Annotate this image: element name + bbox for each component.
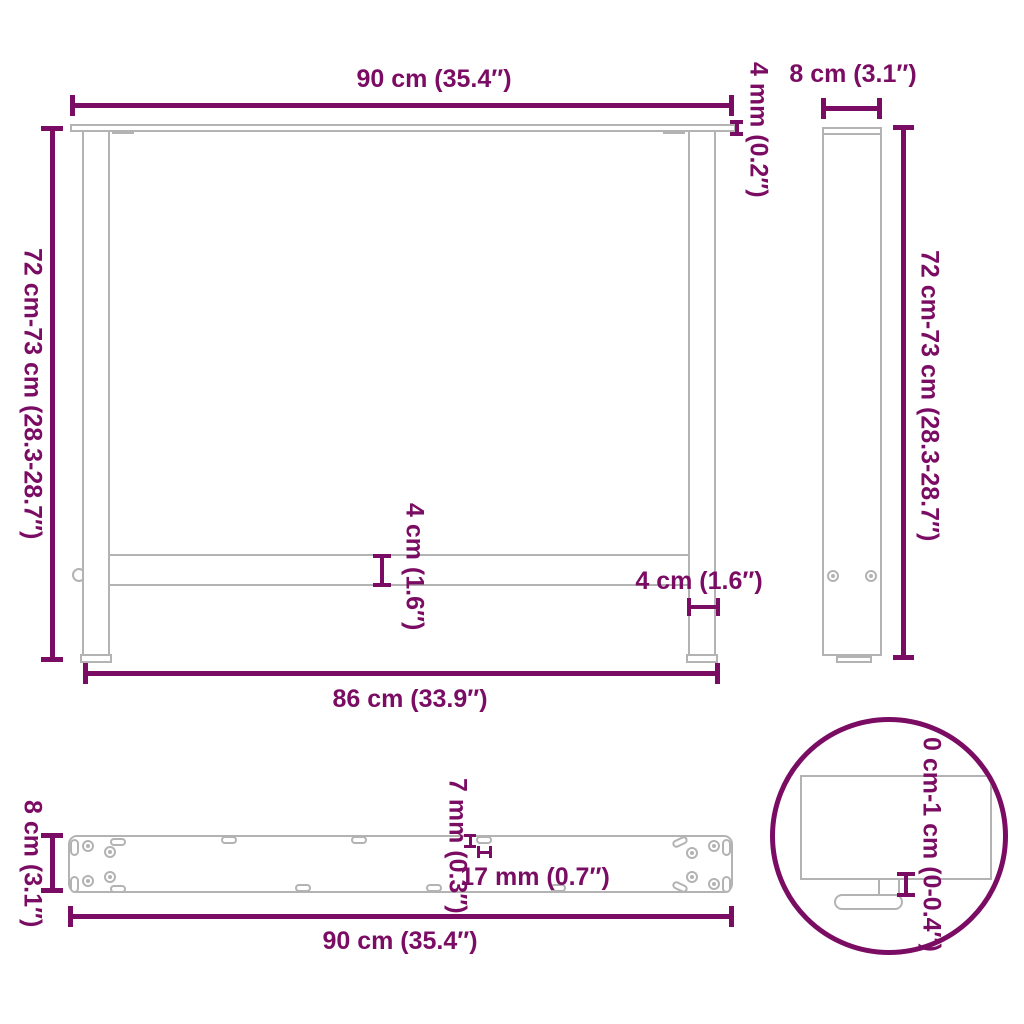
dim-cap [83,663,88,684]
dim-label-front-height: 72 cm-73 cm (28.3-28.7″) [18,248,46,539]
plate-slot [70,876,79,893]
front-foot-left [80,654,112,663]
dim-cap [897,872,915,876]
front-crossbar [100,554,698,586]
dim-label-hole-width: 7 mm (0.3″) [443,778,471,914]
dim-label-plate-thickness: 4 mm (0.2″) [744,62,772,198]
front-top-plate-lip-right [663,132,685,134]
side-foot [836,656,872,663]
plate-slot [295,884,311,892]
dim-line-side-depth [823,106,881,111]
plate-screw-dot [108,850,112,854]
dim-label-foot-adjustment: 0 cm-1 cm (0-0.4″) [917,737,945,952]
dim-label-front-width-bottom: 86 cm (33.9″) [332,686,487,714]
dim-cap [716,598,720,616]
dim-cap [715,663,720,684]
plate-slot [110,838,126,846]
plate-slot [221,836,237,844]
dim-cap [821,98,826,119]
dim-cap [477,846,480,858]
side-top-plate-line [822,133,882,135]
dim-label-front-width-top: 90 cm (35.4″) [356,66,511,94]
dim-cap [897,893,915,897]
dim-label-plate-length: 90 cm (35.4″) [322,928,477,956]
detail-leg [800,775,992,880]
side-screw-right-dot [869,574,873,578]
side-screw-left-dot [831,574,835,578]
front-top-plate [70,124,736,132]
detail-foot-pad [834,894,903,910]
plate-slot [110,885,126,893]
dim-label-plate-depth: 8 cm (3.1″) [18,800,46,927]
dim-marker-foot-adjustment [904,875,908,894]
plate-screw-dot [690,875,694,879]
plate-slot [722,839,731,856]
dim-cap [373,554,391,558]
front-top-plate-lip-left [112,132,134,134]
dim-label-leg-width: 4 cm (1.6″) [635,568,762,596]
plate-slot [476,836,492,844]
plate-slot [426,884,442,892]
plate-screw-dot [712,844,716,848]
dim-cap [730,132,743,136]
detail-circle [770,717,1008,955]
plate-screw-dot [690,851,694,855]
dim-marker-crossbar [380,556,384,585]
dim-cap [877,98,882,119]
dim-cap [893,655,914,660]
plate-slot [351,836,367,844]
dim-line-plate-depth [50,835,55,892]
dim-line-front-height [50,128,55,660]
dim-cap [489,846,492,858]
dim-cap [687,598,691,616]
dim-label-hole-length: 17 mm (0.7″) [460,864,610,892]
dim-cap [41,657,63,662]
plate-screw-dot [108,875,112,879]
plate-outline [68,835,733,893]
dim-cap [729,906,734,927]
dim-cap [68,906,73,927]
plate-screw-dot [712,882,716,886]
plate-screw-dot [86,879,90,883]
dim-cap [70,95,75,116]
dim-label-crossbar: 4 cm (1.6″) [400,503,428,630]
plate-slot [70,839,79,856]
dim-label-side-height: 72 cm-73 cm (28.3-28.7″) [915,250,943,541]
dim-line-front-width-bottom [85,671,717,676]
front-foot-right [686,654,718,663]
dim-line-plate-length [70,914,731,919]
dim-cap [893,125,914,130]
dim-cap [373,583,391,587]
dim-marker-leg-width [690,605,718,609]
dim-cap [41,126,63,131]
plate-screw-dot [86,844,90,848]
dim-label-side-depth: 8 cm (3.1″) [789,61,916,89]
dim-line-side-height [901,127,906,658]
dim-line-front-width-top [72,103,731,108]
dim-cap [730,120,743,124]
front-leg-left [82,130,110,656]
dim-cap [729,95,734,116]
plate-slot [722,876,731,893]
